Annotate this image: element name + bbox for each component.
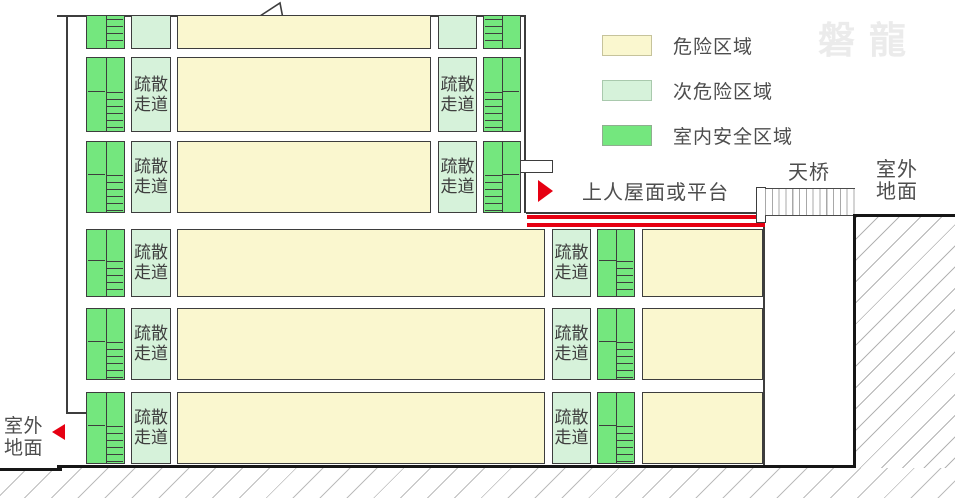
floor-5: 疏散走道 疏散走道 [0, 308, 955, 380]
danger-zone-room [642, 392, 763, 464]
evacuation-corridor [131, 15, 171, 49]
stair-shaft [86, 15, 125, 49]
sky-bridge-label: 天桥 [788, 163, 830, 185]
evacuation-corridor: 疏散走道 [131, 229, 171, 297]
stair-shaft [597, 229, 635, 297]
stair-shaft [86, 229, 125, 297]
stair-shaft [483, 15, 521, 49]
outdoor-ground-right-label: 室外地面 [876, 160, 922, 203]
stair-shaft [597, 308, 635, 380]
floor-2: 疏散走道 疏散走道 [0, 57, 955, 132]
red-arrow-left-icon [52, 424, 65, 440]
corridor-label: 疏散走道 [440, 157, 476, 197]
roof-platform-label: 上人屋面或平台 [582, 183, 729, 205]
evacuation-corridor: 疏散走道 [552, 229, 591, 297]
corridor-label: 疏散走道 [133, 75, 169, 115]
evacuation-corridor: 疏散走道 [131, 141, 171, 213]
corridor-label: 疏散走道 [440, 75, 476, 115]
danger-zone-room [177, 141, 431, 213]
evacuation-corridor [438, 15, 477, 49]
stair-shaft [86, 57, 125, 132]
outdoor-ground-left-label: 室外地面 [4, 416, 46, 459]
corridor-label: 疏散走道 [133, 243, 169, 283]
stair-shaft [483, 57, 521, 132]
danger-zone-room [177, 229, 545, 297]
earth-hatch [0, 468, 955, 498]
danger-zone-room [177, 308, 545, 380]
danger-zone-room [642, 229, 763, 297]
corridor-label: 疏散走道 [554, 408, 590, 448]
corridor-label: 疏散走道 [133, 324, 169, 364]
evacuation-corridor: 疏散走道 [131, 392, 171, 464]
corridor-label: 疏散走道 [554, 243, 590, 283]
corridor-label: 疏散走道 [554, 324, 590, 364]
outdoor-ground-elevated [853, 214, 955, 468]
floor-6: 疏散走道 疏散走道 [0, 392, 955, 464]
stair-shaft [597, 392, 635, 464]
ground-line [0, 468, 62, 471]
danger-zone-room [177, 57, 431, 132]
roof-platform-highlight-line [527, 215, 765, 219]
sky-bridge [765, 188, 855, 216]
red-arrow-right-icon [538, 180, 553, 202]
evacuation-corridor: 疏散走道 [438, 141, 477, 213]
corridor-label: 疏散走道 [133, 408, 169, 448]
floor-4: 疏散走道 疏散走道 [0, 229, 955, 297]
stair-shaft [86, 308, 125, 380]
danger-zone-room [177, 15, 431, 49]
evacuation-corridor: 疏散走道 [438, 57, 477, 132]
evacuation-corridor: 疏散走道 [552, 308, 591, 380]
stair-shaft [86, 141, 125, 213]
ground-line [57, 465, 853, 468]
danger-zone-room [177, 392, 545, 464]
roof-platform-highlight-line [527, 223, 765, 227]
danger-zone-room [642, 308, 763, 380]
evacuation-corridor: 疏散走道 [552, 392, 591, 464]
corridor-label: 疏散走道 [133, 157, 169, 197]
stair-shaft [483, 141, 521, 213]
stair-shaft [86, 392, 125, 464]
evacuation-corridor: 疏散走道 [131, 308, 171, 380]
evacuation-corridor: 疏散走道 [131, 57, 171, 132]
building-section-diagram: 磐龍 危险区域 次危险区域 室内安全区域 疏散走 [0, 0, 955, 504]
floor-1 [0, 15, 955, 49]
exit-canopy [520, 160, 553, 173]
